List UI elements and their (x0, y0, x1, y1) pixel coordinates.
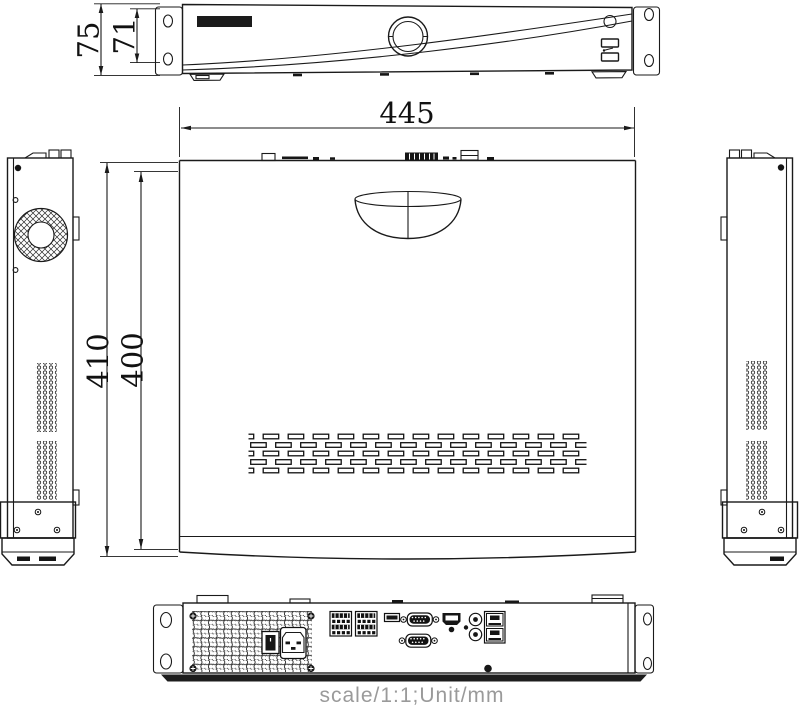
serial-connector (399, 634, 437, 647)
jog-dial (389, 17, 428, 56)
screw (54, 527, 60, 533)
usb-port (385, 614, 400, 622)
dim-depth-overall: 410 (81, 333, 115, 388)
ear-hole (644, 658, 652, 670)
power-switch (262, 632, 279, 654)
vent-slots (249, 433, 587, 474)
iec-power-inlet (281, 628, 307, 659)
vent-holes (35, 363, 57, 432)
front-view (156, 5, 660, 81)
screw (778, 164, 784, 170)
front-panel-body (183, 5, 633, 74)
ear-hole (644, 613, 652, 625)
top-view (180, 151, 636, 560)
screw (464, 625, 468, 629)
scale-note: scale/1:1;Unit/mm (319, 684, 504, 707)
screw (35, 509, 41, 515)
front-foot (724, 538, 796, 565)
dim-height-overall: 75 (72, 22, 106, 59)
terminal-block (356, 612, 378, 637)
front-bracket (1, 502, 76, 538)
fan-grille (15, 209, 68, 262)
side-tab (721, 217, 727, 240)
usb-icon (602, 39, 619, 61)
mounting-ear-left (154, 605, 184, 673)
bottom-cover-strip (161, 675, 647, 682)
screw (741, 527, 747, 533)
vent-holes (746, 441, 768, 500)
ear-hole (161, 654, 172, 669)
mounting-ear-right (635, 605, 654, 673)
screw (189, 665, 196, 672)
ear-hole (645, 55, 654, 67)
top-edge-bumps (197, 595, 623, 604)
dimension-annotations: 75 71 445 410 400 (72, 4, 635, 557)
right-side-view (721, 150, 798, 565)
rear-bumps (25, 150, 71, 158)
vga-connector (401, 613, 439, 626)
audio-jacks (469, 613, 481, 640)
ear-hole (164, 53, 173, 65)
ear-hole (161, 613, 172, 628)
screw (307, 612, 314, 619)
vent-holes (746, 361, 768, 430)
mounting-ear-left (156, 7, 183, 75)
technical-drawing-canvas: 75 71 445 410 400 scale/1:1;Unit/mm (0, 0, 800, 713)
rear-bumps (730, 150, 776, 158)
screw (484, 665, 492, 673)
screw (778, 527, 784, 533)
screw (759, 509, 765, 515)
dim-depth-body: 400 (116, 332, 150, 387)
screw (14, 527, 20, 533)
hdmi-port (443, 613, 461, 632)
side-tab (73, 217, 79, 240)
dimension-drawing-page: 75 71 445 410 400 scale/1:1;Unit/mm (0, 0, 800, 713)
terminal-block-top (405, 153, 438, 161)
front-dome-bulge (355, 192, 461, 239)
rear-connector-bumps (262, 151, 494, 161)
brand-logo (197, 16, 252, 27)
rear-view (154, 595, 654, 682)
mounting-ear-right (634, 7, 660, 75)
screw (307, 665, 314, 672)
screw (189, 612, 196, 619)
terminal-block (330, 612, 352, 637)
dim-width: 445 (379, 96, 434, 130)
ear-hole (645, 9, 654, 21)
ear-hole (164, 15, 173, 27)
front-foot (2, 538, 74, 565)
vent-holes (35, 441, 57, 500)
left-side-view (1, 150, 80, 565)
dim-height-body: 71 (108, 18, 142, 55)
screw (15, 165, 21, 171)
rj45-ports (485, 612, 506, 644)
